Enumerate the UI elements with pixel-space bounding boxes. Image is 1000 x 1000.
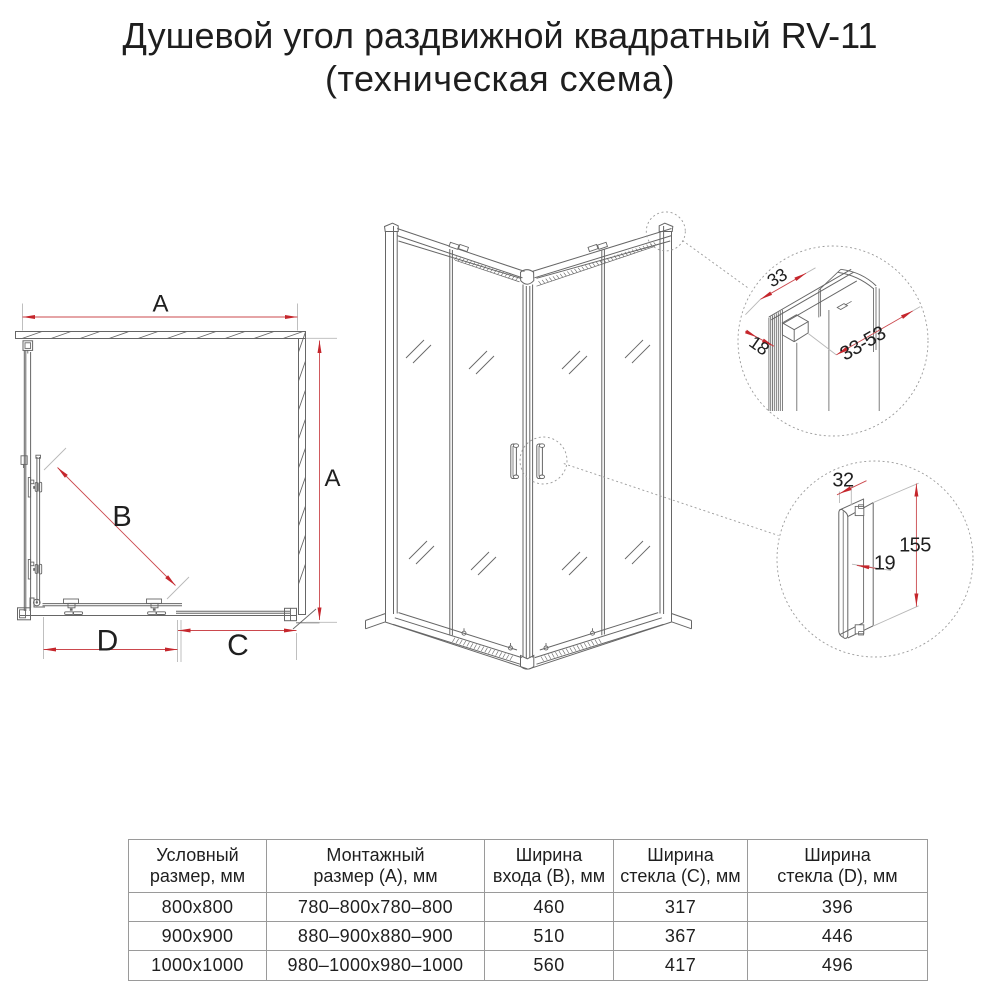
svg-text:B: B: [112, 501, 131, 533]
svg-text:C: C: [227, 629, 249, 662]
svg-text:19: 19: [874, 553, 896, 575]
svg-text:155: 155: [899, 535, 931, 557]
svg-text:33: 33: [764, 264, 791, 291]
svg-text:32: 32: [832, 470, 854, 492]
svg-text:33-53: 33-53: [836, 322, 889, 366]
svg-text:A: A: [152, 291, 168, 318]
svg-text:D: D: [97, 625, 119, 658]
svg-text:A: A: [324, 465, 340, 492]
